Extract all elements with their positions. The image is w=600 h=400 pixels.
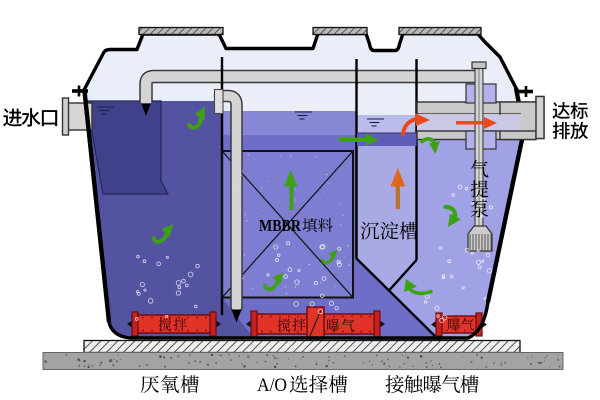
svg-text:MBBR: MBBR — [259, 216, 302, 235]
svg-text:A/O: A/O — [257, 376, 287, 396]
